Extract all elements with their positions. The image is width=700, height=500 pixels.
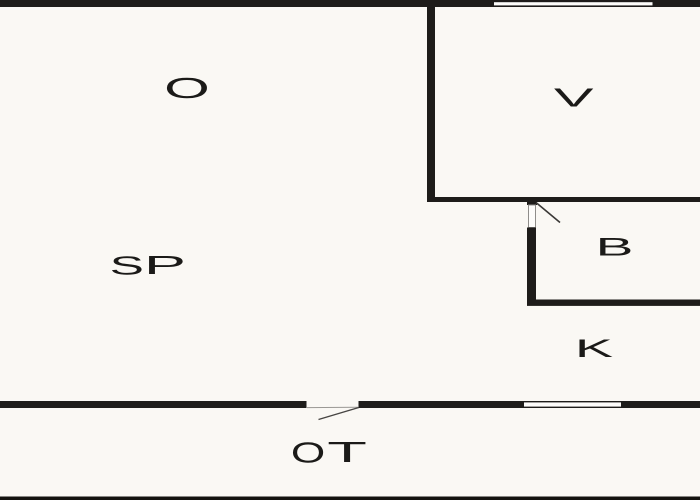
svg-text:B: B [596,233,634,261]
svg-text:O: O [164,72,210,104]
svg-text:T: T [327,437,367,469]
svg-text:P: P [144,251,186,280]
svg-text:K: K [575,335,614,363]
svg-text:V: V [554,83,594,113]
svg-text:S: S [110,251,144,280]
svg-text:O: O [291,436,325,468]
